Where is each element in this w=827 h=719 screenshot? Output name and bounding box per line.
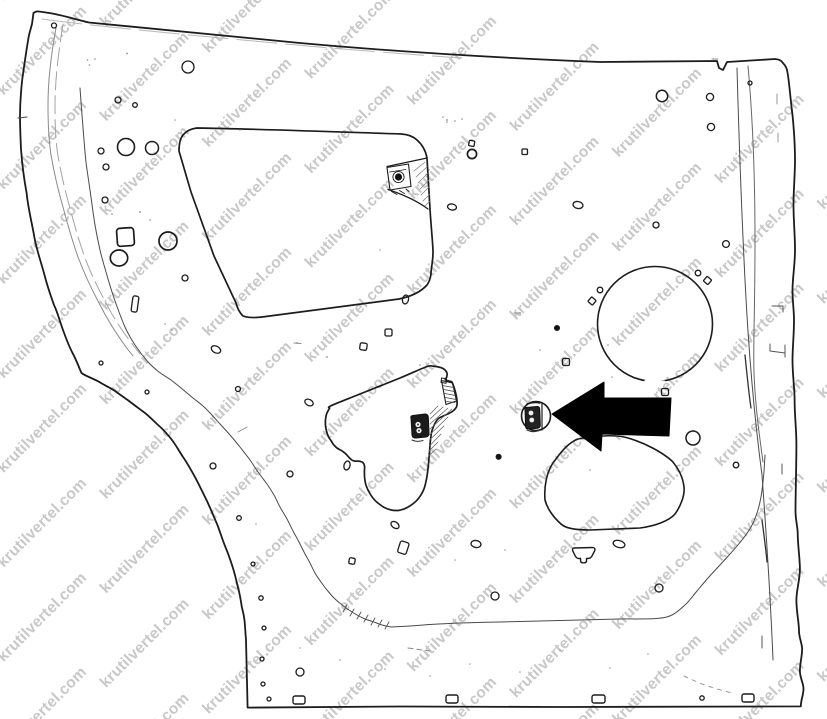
svg-text:krutilvertel.com: krutilvertel.com [404, 13, 500, 109]
svg-text:krutilvertel.com: krutilvertel.com [404, 296, 500, 392]
svg-text:krutilvertel.com: krutilvertel.com [302, 175, 398, 271]
svg-text:krutilvertel.com: krutilvertel.com [814, 211, 827, 307]
svg-text:krutilvertel.com: krutilvertel.com [712, 563, 808, 659]
svg-text:krutilvertel.com: krutilvertel.com [507, 228, 603, 324]
svg-text:krutilvertel.com: krutilvertel.com [97, 312, 193, 408]
svg-text:krutilvertel.com: krutilvertel.com [302, 270, 398, 366]
svg-text:krutilvertel.com: krutilvertel.com [97, 407, 193, 503]
svg-text:krutilvertel.com: krutilvertel.com [97, 690, 193, 719]
svg-text:krutilvertel.com: krutilvertel.com [712, 658, 808, 719]
svg-text:krutilvertel.com: krutilvertel.com [814, 589, 827, 685]
svg-text:krutilvertel.com: krutilvertel.com [199, 55, 295, 151]
svg-text:krutilvertel.com: krutilvertel.com [97, 501, 193, 597]
svg-text:krutilvertel.com: krutilvertel.com [0, 286, 90, 382]
svg-text:krutilvertel.com: krutilvertel.com [97, 595, 193, 691]
svg-text:krutilvertel.com: krutilvertel.com [814, 306, 827, 402]
svg-text:krutilvertel.com: krutilvertel.com [814, 400, 827, 496]
svg-text:krutilvertel.com: krutilvertel.com [507, 133, 603, 229]
svg-text:krutilvertel.com: krutilvertel.com [712, 91, 808, 187]
svg-text:krutilvertel.com: krutilvertel.com [302, 553, 398, 649]
svg-text:krutilvertel.com: krutilvertel.com [814, 684, 827, 719]
svg-text:krutilvertel.com: krutilvertel.com [97, 29, 193, 125]
svg-text:krutilvertel.com: krutilvertel.com [404, 390, 500, 486]
svg-text:krutilvertel.com: krutilvertel.com [302, 364, 398, 460]
svg-text:krutilvertel.com: krutilvertel.com [814, 117, 827, 213]
svg-text:krutilvertel.com: krutilvertel.com [404, 579, 500, 675]
svg-text:krutilvertel.com: krutilvertel.com [97, 123, 193, 219]
svg-text:krutilvertel.com: krutilvertel.com [199, 527, 295, 623]
svg-text:krutilvertel.com: krutilvertel.com [0, 3, 90, 99]
svg-text:krutilvertel.com: krutilvertel.com [97, 218, 193, 314]
svg-text:krutilvertel.com: krutilvertel.com [0, 475, 90, 571]
svg-text:krutilvertel.com: krutilvertel.com [507, 39, 603, 135]
svg-text:krutilvertel.com: krutilvertel.com [0, 664, 90, 719]
svg-text:krutilvertel.com: krutilvertel.com [609, 159, 705, 255]
svg-text:krutilvertel.com: krutilvertel.com [199, 0, 295, 56]
svg-text:krutilvertel.com: krutilvertel.com [302, 648, 398, 719]
svg-text:krutilvertel.com: krutilvertel.com [0, 569, 90, 665]
svg-text:krutilvertel.com: krutilvertel.com [404, 107, 500, 203]
svg-text:krutilvertel.com: krutilvertel.com [712, 469, 808, 565]
svg-text:krutilvertel.com: krutilvertel.com [507, 700, 603, 719]
svg-text:krutilvertel.com: krutilvertel.com [0, 97, 90, 193]
svg-text:krutilvertel.com: krutilvertel.com [814, 495, 827, 591]
svg-text:krutilvertel.com: krutilvertel.com [0, 380, 90, 476]
svg-text:krutilvertel.com: krutilvertel.com [199, 149, 295, 245]
svg-text:krutilvertel.com: krutilvertel.com [609, 65, 705, 161]
svg-text:krutilvertel.com: krutilvertel.com [97, 0, 193, 30]
svg-text:krutilvertel.com: krutilvertel.com [302, 0, 398, 82]
svg-text:krutilvertel.com: krutilvertel.com [609, 254, 705, 350]
svg-text:krutilvertel.com: krutilvertel.com [302, 81, 398, 177]
svg-text:krutilvertel.com: krutilvertel.com [404, 674, 500, 719]
svg-text:krutilvertel.com: krutilvertel.com [404, 201, 500, 297]
svg-text:krutilvertel.com: krutilvertel.com [0, 192, 90, 288]
svg-text:krutilvertel.com: krutilvertel.com [199, 244, 295, 340]
